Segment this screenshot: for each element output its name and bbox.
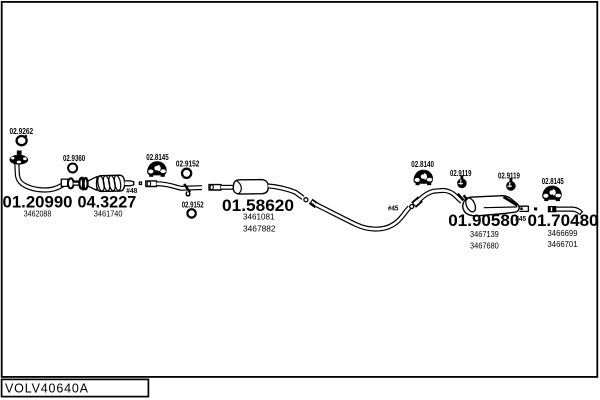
- svg-text:02.9152: 02.9152: [182, 200, 204, 210]
- svg-text:01.90580: 01.90580: [448, 211, 519, 230]
- svg-text:3462088: 3462088: [24, 210, 52, 219]
- svg-text:3466699: 3466699: [548, 229, 579, 238]
- svg-text:01.70480: 01.70480: [528, 211, 599, 230]
- svg-text:02.8145: 02.8145: [146, 152, 169, 162]
- svg-text:3467680: 3467680: [470, 241, 499, 250]
- svg-text:02.8145: 02.8145: [542, 176, 564, 186]
- svg-text:02.9119: 02.9119: [450, 168, 472, 178]
- svg-text:02.9152: 02.9152: [176, 158, 200, 168]
- svg-text:#45: #45: [388, 205, 399, 212]
- svg-text:02.9360: 02.9360: [63, 153, 85, 163]
- svg-text:3466701: 3466701: [548, 240, 579, 249]
- svg-text:3461740: 3461740: [94, 210, 123, 219]
- svg-text:02.9262: 02.9262: [10, 126, 34, 136]
- svg-text:VOLV40640A: VOLV40640A: [5, 382, 89, 396]
- svg-text:3467882: 3467882: [243, 224, 276, 233]
- svg-text:#45: #45: [515, 216, 526, 223]
- svg-text:3467139: 3467139: [470, 230, 499, 239]
- svg-text:02.8140: 02.8140: [411, 159, 434, 169]
- svg-text:3461081: 3461081: [243, 212, 275, 221]
- svg-text:02.9119: 02.9119: [498, 170, 520, 180]
